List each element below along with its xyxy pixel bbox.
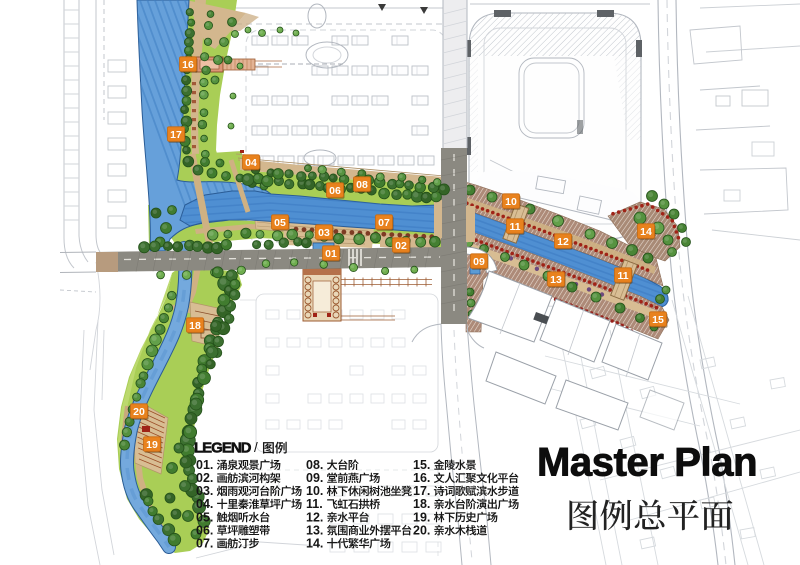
svg-text:17: 17 <box>170 129 182 141</box>
svg-text:19: 19 <box>146 439 158 451</box>
svg-text:09: 09 <box>473 256 485 268</box>
svg-text:01: 01 <box>325 248 337 260</box>
svg-text:12.: 12. <box>306 510 323 524</box>
svg-text:10: 10 <box>505 196 517 208</box>
svg-text:03: 03 <box>318 227 330 239</box>
svg-text:LEGEND: LEGEND <box>194 440 252 457</box>
svg-text:15: 15 <box>652 314 664 326</box>
svg-text:05.: 05. <box>196 510 213 524</box>
svg-text:02: 02 <box>395 240 407 252</box>
svg-text:12: 12 <box>557 236 569 248</box>
svg-text:11: 11 <box>617 270 628 282</box>
svg-text:16.: 16. <box>413 471 430 485</box>
svg-text:18.: 18. <box>413 497 430 511</box>
svg-text:05: 05 <box>274 217 286 229</box>
svg-text:07: 07 <box>378 217 390 229</box>
svg-text:07.: 07. <box>196 536 213 550</box>
svg-text:/: / <box>254 440 258 455</box>
svg-text:06: 06 <box>329 185 341 197</box>
svg-text:03.: 03. <box>196 484 213 498</box>
svg-text:16: 16 <box>182 59 194 71</box>
svg-text:04.: 04. <box>196 497 213 511</box>
svg-text:19.: 19. <box>413 510 430 524</box>
svg-text:09.: 09. <box>306 471 323 485</box>
svg-text:17.: 17. <box>413 484 430 498</box>
svg-text:13: 13 <box>550 274 562 286</box>
svg-text:08.: 08. <box>306 458 323 472</box>
svg-text:20.: 20. <box>413 523 430 537</box>
svg-text:15.: 15. <box>413 458 430 472</box>
svg-text:13.: 13. <box>306 523 323 537</box>
svg-text:14: 14 <box>640 226 652 238</box>
svg-text:Master Plan: Master Plan <box>537 441 757 485</box>
svg-text:06.: 06. <box>196 523 213 537</box>
svg-text:20: 20 <box>133 406 145 418</box>
svg-text:14.: 14. <box>306 536 323 550</box>
svg-text:08: 08 <box>356 179 368 191</box>
svg-text:11: 11 <box>509 221 520 233</box>
svg-text:01.: 01. <box>196 458 213 472</box>
svg-text:02.: 02. <box>196 471 213 485</box>
svg-text:04: 04 <box>245 157 257 169</box>
svg-text:10.: 10. <box>306 484 323 498</box>
svg-text:11.: 11. <box>306 497 323 511</box>
svg-text:18: 18 <box>189 320 201 332</box>
